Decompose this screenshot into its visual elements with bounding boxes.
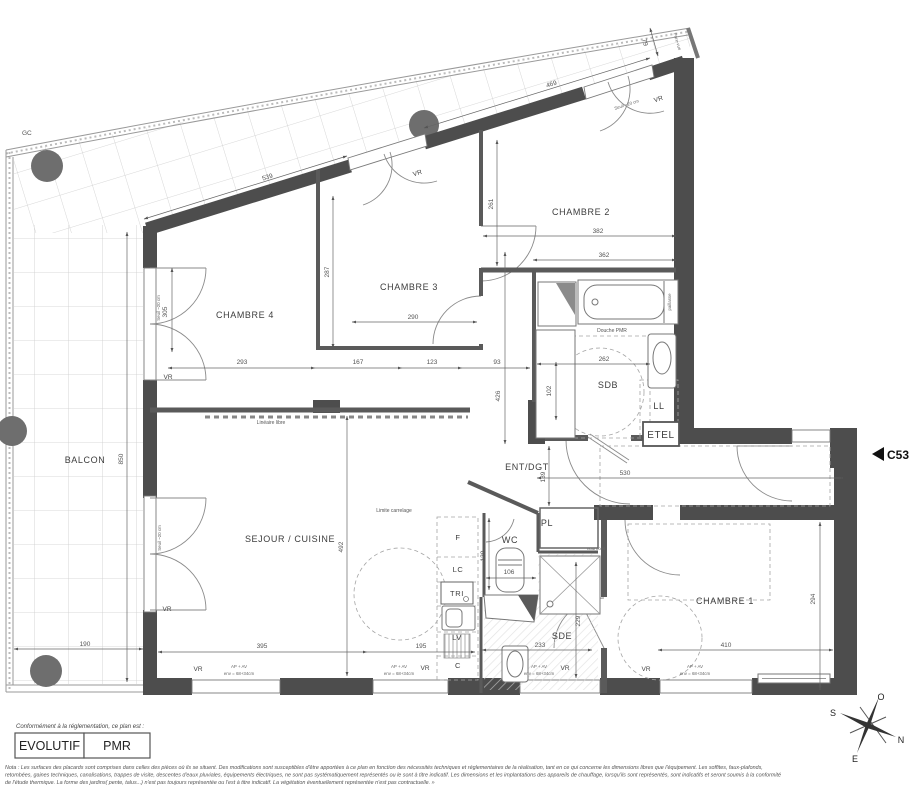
door-arc-entry	[737, 446, 792, 501]
vr-label: VR	[641, 666, 650, 673]
label-ll: LL	[653, 401, 664, 411]
dim-287: 287	[324, 266, 331, 277]
dim-93: 93	[493, 359, 501, 366]
dim-294: 294	[810, 593, 817, 604]
floor-plan-canvas: GC	[0, 0, 911, 800]
label-sejour: SEJOUR / CUISINE	[245, 534, 335, 544]
west-wall	[143, 380, 157, 498]
label-sdb: SDB	[598, 380, 618, 390]
entry-corridor-zone	[600, 446, 830, 506]
dim-167: 167	[353, 359, 364, 366]
vr-label: VR	[163, 374, 172, 381]
label-tri: TRI	[450, 589, 464, 598]
seuil-label: Seuil ~20 cm	[157, 525, 162, 551]
south-wall	[600, 678, 660, 695]
dim-410: 410	[721, 642, 732, 649]
lot-marker: C53	[872, 447, 909, 462]
lot-arrow-icon	[872, 447, 884, 461]
room-labels: CHAMBRE 2 CHAMBRE 3 CHAMBRE 4 CHAMBRE 1 …	[65, 207, 754, 670]
limite-carrelage-label: Limite carrelage	[376, 508, 412, 514]
vr-label: VR	[560, 665, 569, 672]
legend-intro: Conformément à la réglementation, ce pla…	[16, 724, 144, 730]
ap-av-label: AP + AV	[531, 664, 547, 669]
sde-shower-drain	[547, 601, 553, 607]
compass-s: S	[830, 708, 836, 718]
compass-n: N	[898, 735, 905, 745]
dim-362: 362	[599, 252, 610, 259]
ap-av-detail: env = 68+34cm	[524, 671, 555, 676]
nota-line3: de l'étude thermique. La forme des jardi…	[5, 780, 435, 786]
fixtures	[441, 280, 830, 690]
seuil-label: Seuil ~20 cm	[156, 295, 161, 321]
seuil-label: Seuil ~20 cm	[614, 98, 640, 111]
closet-pl	[540, 508, 598, 548]
column	[30, 655, 62, 687]
entry-wall	[674, 428, 792, 444]
west-wall	[143, 226, 157, 268]
label-chambre4: CHAMBRE 4	[216, 310, 274, 320]
dim-426: 426	[495, 390, 502, 401]
window-south-1	[192, 680, 280, 693]
dim-190: 190	[80, 641, 91, 648]
door-arc	[150, 324, 206, 380]
nota-line1: Nota : Les surfaces des placards sont co…	[5, 765, 763, 771]
lineaire-libre-label: Linéaire libre	[257, 420, 286, 426]
chambre1-east-wall	[834, 444, 857, 695]
label-pl: PL	[541, 518, 553, 528]
dim-123: 123	[427, 359, 438, 366]
dim-261: 261	[488, 198, 495, 209]
nourrices-label: nourrices	[587, 546, 606, 551]
dim-139: 139	[540, 471, 547, 482]
ap-av-label: AP + AV	[391, 664, 407, 669]
legend-evolutif: EVOLUTIF	[19, 739, 80, 753]
dim-492: 492	[338, 541, 345, 552]
compass-spoke-n	[867, 723, 896, 737]
dim-233: 233	[535, 642, 546, 649]
label-ent: ENT/DGT	[505, 462, 549, 472]
wall-wc-diagonal	[468, 482, 538, 513]
vr-label: VR	[162, 606, 171, 613]
entry-threshold	[792, 430, 830, 442]
column	[31, 150, 63, 182]
ap-av-detail: env = 68+34cm	[224, 671, 255, 676]
ap-av-label: AP + AV	[687, 664, 703, 669]
west-wall	[143, 610, 157, 682]
sde-washbasin-bowl	[507, 651, 523, 677]
footer-nota: Nota : Les surfaces des placards sont co…	[5, 765, 781, 786]
label-balcon: BALCON	[65, 455, 106, 465]
label-chambre3: CHAMBRE 3	[380, 282, 438, 292]
door-arc-chambre2	[481, 226, 536, 281]
dim-130: 130	[480, 550, 487, 561]
compass-rose: O S N E	[830, 692, 904, 764]
dim-850: 850	[118, 453, 125, 464]
dim-305: 305	[162, 306, 169, 317]
dim-229: 229	[575, 615, 582, 626]
douche-pmr-label: Douche PMR	[597, 328, 627, 334]
ap-av-detail: env = 68+34cm	[680, 671, 711, 676]
dim-395: 395	[257, 643, 268, 650]
south-wall	[280, 678, 373, 695]
dim-382: 382	[593, 228, 604, 235]
kitchen-sink-bowl	[446, 609, 462, 627]
pmr-circle-sejour	[354, 548, 446, 640]
window-south-2	[373, 680, 448, 693]
window-south-4	[660, 680, 752, 693]
legend-pmr: PMR	[103, 739, 131, 753]
sdb-washbasin-bowl	[653, 342, 671, 374]
nota-line2: retombées, gaines techniques, canalisati…	[5, 773, 781, 779]
floor-plan-drawing: GC	[0, 0, 911, 800]
dim-106: 106	[504, 569, 515, 576]
label-chambre1: CHAMBRE 1	[696, 596, 754, 606]
ap-av-label: AP + AV	[231, 664, 247, 669]
dim-530: 530	[620, 470, 631, 477]
vr-label: VR	[412, 169, 423, 178]
vr-label: VR	[420, 665, 429, 672]
label-sde: SDE	[552, 631, 572, 641]
label-lv: LV	[452, 633, 462, 642]
chambre1-north-wall	[680, 505, 837, 520]
chambre1-north-wall	[594, 505, 653, 520]
door-leaf-sdb	[588, 437, 627, 463]
vr-label: VR	[193, 666, 202, 673]
label-etel: ETEL	[647, 430, 674, 441]
compass-spoke-s	[840, 713, 869, 728]
ap-av-detail: env = 68+34cm	[384, 671, 415, 676]
label-f: F	[455, 533, 460, 542]
shower-pmr-sdb	[536, 330, 575, 438]
legend: Conformément à la réglementation, ce pla…	[15, 724, 150, 758]
label-chambre2: CHAMBRE 2	[552, 207, 610, 217]
door-arc-chambre3	[433, 296, 481, 344]
vr-label: VR	[653, 95, 664, 104]
dim-262: 262	[599, 356, 610, 363]
paillasse-label: paillasse	[667, 293, 672, 311]
compass-o: O	[877, 692, 884, 702]
dim-293: 293	[237, 359, 248, 366]
chambre1-furniture-zone	[628, 524, 770, 600]
lot-code: C53	[887, 448, 909, 462]
east-wall	[674, 58, 694, 440]
door-arc	[150, 554, 206, 610]
door-arc-chambre1	[625, 520, 680, 575]
dim-102: 102	[546, 385, 553, 396]
dim-290: 290	[408, 314, 419, 321]
gc-label: GC	[22, 130, 32, 137]
label-lc: LC	[453, 565, 464, 574]
compass-e: E	[852, 754, 858, 764]
dim-195: 195	[416, 643, 427, 650]
label-wc: WC	[502, 535, 518, 545]
label-c: C	[455, 661, 461, 670]
bathtub-drain	[592, 299, 598, 305]
